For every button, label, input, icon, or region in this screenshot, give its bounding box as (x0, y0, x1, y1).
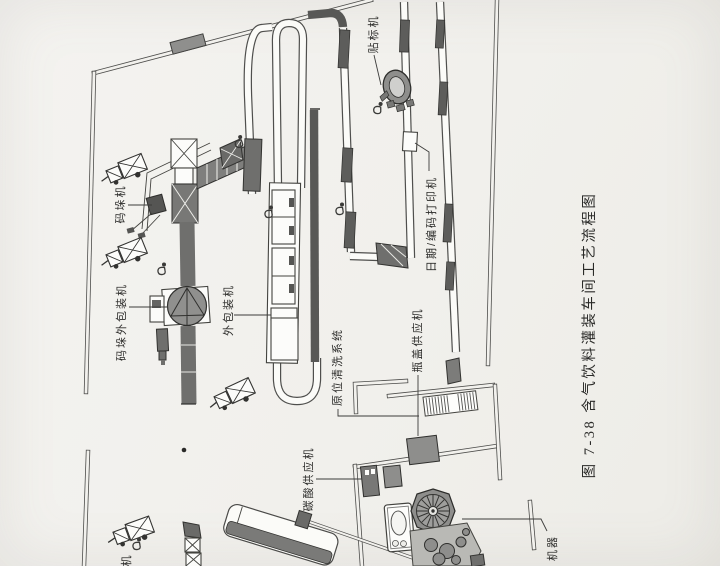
label-machine-partial-left: 机 (119, 554, 133, 566)
outer-packer-machine (266, 183, 300, 364)
label-labeler: 贴标机 (366, 15, 380, 54)
air-conveyor (423, 391, 478, 416)
worker-icon (373, 101, 383, 114)
figure-caption: 图 7-38 含气饮料灌装车间工艺流程图 (581, 192, 598, 479)
wall-door-wedge (446, 358, 461, 384)
pallet-wrapper-machine (150, 222, 210, 404)
carbonator-unit (360, 465, 402, 497)
conveyor-ramp (376, 243, 408, 268)
wall-door-bar (170, 34, 206, 54)
label-date-code-printer: 日期/编码打印机 (424, 176, 438, 272)
forklift-icon (97, 237, 148, 274)
forklift-icon (104, 516, 155, 552)
depalletizer-column (183, 522, 201, 566)
label-palletizer: 码垛机 (113, 185, 127, 224)
forklift-icon (206, 378, 257, 417)
dark-conveyor-band (314, 110, 315, 362)
date-code-printer-head (402, 132, 417, 152)
scanned-book-page: 码垛机 码垛外包装机 外包装机 原位清洗系统 碳酸供应机 瓶盖供应机 贴标机 日… (0, 0, 720, 566)
label-pallet-outer-packer: 码垛外包装机 (114, 283, 128, 361)
syrup-tank (384, 503, 415, 552)
label-cap-supply: 瓶盖供应机 (410, 308, 424, 373)
worker-icon (336, 203, 344, 215)
workshop-flow-diagram: 码垛机 码垛外包装机 外包装机 原位清洗系统 碳酸供应机 瓶盖供应机 贴标机 日… (0, 0, 720, 566)
cap-feeder-machine (407, 435, 440, 464)
label-cip-system: 原位清洗系统 (330, 328, 344, 406)
worker-icon (158, 263, 166, 275)
filler-monoblock (410, 523, 485, 566)
floor-mark-dot (182, 448, 187, 453)
label-machine-partial-right: 机器 (545, 535, 559, 561)
bottle-infeed-conveyor (221, 502, 340, 566)
label-carbonation-supply: 碳酸供应机 (301, 447, 315, 512)
label-outer-packer: 外包装机 (221, 284, 235, 336)
